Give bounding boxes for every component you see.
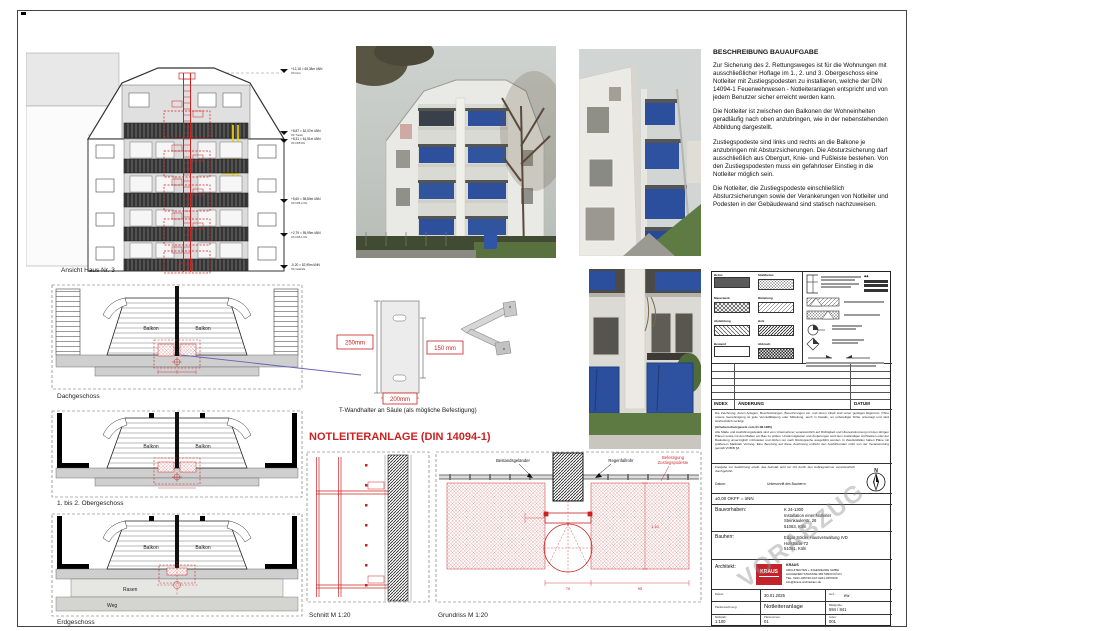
level-label: +12,18 = 65,38m üNN [291,67,323,71]
architekt-row: Architekt: KRAUS KRAUS ARCHITEKTEN + ING… [712,560,892,590]
elevation-drawing: +12,18 = 65,38m üNN OK First +8,87 = 62,… [26,39,346,274]
description-block: BESCHREIBUNG BAUAUFGABE Zur Sicherung de… [713,49,891,209]
datum-row: Datum: 30.01.2025 Gez.: ew [712,590,892,602]
balkon-label: Balkon [195,444,211,450]
kote-symbol-icon [806,337,826,351]
freigabe-section: Freigabe zur Ausführung erteilt, das Auf… [712,464,892,494]
kraus-logo: KRAUS [756,564,782,585]
gez-cell-value: ew [844,593,849,598]
legal-paragraph: Die Zeichnung, deren Anlagen, Beschreibu… [715,412,889,424]
blatt-cell-value: 594 / 841 [829,607,846,612]
plan-sheet: +12,18 = 65,38m üNN OK First +8,87 = 62,… [17,10,907,627]
level-label: +2,79 = 55,99m üNN [291,231,321,235]
bauherr-row: Bauherr: Edgar Sölder Hausverwaltung IVD… [712,532,892,560]
bauherr-label: Bauherr: [715,534,734,540]
description-paragraph: Zustiegspodeste sind links und rechts an… [713,139,891,179]
door-symbol-icon [806,296,840,308]
bracket-3d-render [461,301,517,355]
legal-paragraph: Alle Maße und Ausführungsdetails sind vo… [715,431,889,450]
legend-swatch-abdichtung [714,325,750,336]
description-paragraph: Die Notleiter ist zwischen den Balkonen … [713,108,891,132]
index-cell-value: 001 [829,619,836,624]
index-col-header: INDEX [714,401,728,406]
photo-balcony-closeup [589,269,701,449]
dim-200: 200mm [390,397,410,403]
rasen-label: Rasen [123,587,138,593]
arrow-symbol-icon [844,352,874,360]
balkon-label: Balkon [195,545,211,551]
legal-notes: Die Zeichnung, deren Anlagen, Beschreibu… [712,410,892,464]
level-symbol-icon [806,323,826,337]
schnitt-drawing [306,451,434,607]
arrow-symbol-icon [806,352,836,360]
balkon-label: Balkon [143,545,159,551]
kote-row: ±0,00 OKFF = üNN [712,494,892,505]
weg-label: Weg [107,603,117,609]
bauvorhaben-line: 51063, Köln [784,524,831,530]
legend-section: Beton Stahlbeton Mauerwerk Dämmung Abdic… [712,272,892,364]
bauherr-line: Edgar Sölder Hausverwaltung IVD [784,535,848,541]
north-arrow: N [864,466,888,493]
plannr-cell-value: 01 [764,619,769,624]
legend-label: Abbruch [758,343,800,346]
drawing-sheet-page: +12,18 = 65,38m üNN OK First +8,87 = 62,… [0,0,1120,631]
grundriss-drawing: 70 95 1,10 Bestandsgeländer Regenfallroh… [435,451,703,607]
twandhalter-caption: T-Wandhalter an Säule (als mögliche Befe… [339,407,477,414]
bauvorhaben-row: Bauvorhaben: K 24-1300 Installation eine… [712,505,892,532]
legal-paragraph: (Urheberschutzgesetz vom 01.08.1965) [715,426,889,430]
plan-caption-og: 1. bis 2. Obergeschoss [57,500,123,507]
balkon-label: Balkon [143,326,159,332]
balkon-label: Balkon [143,444,159,450]
level-label: -0,20 = 52,99m üNN [291,263,320,267]
schnitt-caption: Schnitt M 1:20 [309,612,351,619]
level-sublabel: OK FFB DG [291,141,305,145]
elevation-caption: Ansicht Haus Nr. 3 [61,267,115,274]
mass-cell-value: 1:100 [715,619,725,624]
legend-swatch-bestand [714,346,750,357]
notleiter-heading: NOTLEITERANLAGE (DIN 14094-1) [309,431,491,443]
dim-70: 70 [566,586,571,591]
architekt-line: info@kraus-architekten.de [786,580,842,584]
dim-95: 95 [638,586,643,591]
bestandsgelaender-label: Bestandsgeländer [496,458,530,463]
dim-250: 250mm [345,341,365,347]
plan-caption-eg: Erdgeschoss [57,619,95,626]
wall-symbol-icon [806,309,840,321]
dim-150: 150 mm [434,346,456,352]
plan-erdgeschoss: Balkon Balkon Rasen Weg [51,513,303,617]
level-sublabel: OK First [291,71,301,75]
legend-swatch-beton [714,277,750,288]
legend-swatch-mauerwerk [714,302,750,313]
legend-swatch-holz [758,325,794,336]
level-sublabel: OK FFB 2.OG [291,201,307,205]
aenderung-col-header: ÄNDERUNG [738,401,764,406]
level-label: +8,31 = 61,51m üNN [291,137,321,141]
datum-col-header: DATUM [854,401,870,406]
legend-swatch-daemmung [758,302,794,313]
legend-label: Abdichtung [714,320,756,323]
legend-label: Dämmung [758,297,800,300]
legend-label: Mauerwerk [714,297,756,300]
level-label: +8,87 = 62,07m üNN [291,129,321,133]
regenfallrohr-label: Regenfallrohr [608,458,634,463]
freigabe-text: Freigabe zur Ausführung erteilt, das Auf… [715,466,855,474]
plan-obergeschoss: Balkon Balkon [51,410,303,498]
unterschrift-label: Unterschrift des Bauherrn [767,482,806,486]
level-sublabel: OK FFB 1.OG [291,235,307,239]
datum-line-label: Datum: [715,482,726,486]
photo-building-side [579,49,701,256]
balkon-label: Balkon [195,326,211,332]
grundriss-caption: Grundriss M 1:20 [438,612,488,619]
description-title: BESCHREIBUNG BAUAUFGABE [713,49,891,56]
datum-cell-label: Datum: [715,592,724,596]
architekt-label: Architekt: [715,564,736,570]
bauherr-line: 51061, Köln [784,546,848,552]
photo-building-front [356,46,556,258]
index-table: INDEX ÄNDERUNG DATUM [712,364,892,410]
massstab-row: Maßstab: 1:100 Plannummer: 01 Index: 001 [712,615,892,626]
twandhalter-detail: 250mm 150 mm 200mm [333,297,523,405]
plan-caption-dg: Dachgeschoss [57,393,100,400]
legend-symbols: ◆◆ [802,272,890,363]
bauvorhaben-label: Bauvorhaben: [715,507,746,513]
description-paragraph: Zur Sicherung des 2. Rettungsweges ist f… [713,62,891,102]
legend-label: Stahlbeton [758,274,800,277]
level-sublabel: OK Gelände [291,267,306,271]
title-block: Beton Stahlbeton Mauerwerk Dämmung Abdic… [711,271,891,626]
dim-110: 1,10 [651,524,660,529]
window-symbol-icon [806,274,818,294]
legend-swatch-stahlbeton [758,279,794,290]
gez-cell-label: Gez.: [829,592,836,596]
description-paragraph: Die Notleiter, die Zustiegspodeste einsc… [713,185,891,209]
datum-cell-value: 30.01.2025 [764,593,785,598]
bez-cell-label: Planbezeichnung: [715,605,737,609]
legend-swatch-abbruch [758,348,794,359]
kote-value: ±0,00 OKFF = üNN [715,496,754,501]
zustiegspodeste-label: Zustiegspodeste [658,460,689,465]
bez-cell-value: Notleiteranlage [764,604,803,610]
legend-label: Holz [758,320,800,323]
trim-mark [21,12,26,15]
planbezeichnung-row: Planbezeichnung: Notleiteranlage Blattgr… [712,602,892,615]
level-label: +5,60 = 58,80m üNN [291,197,321,201]
